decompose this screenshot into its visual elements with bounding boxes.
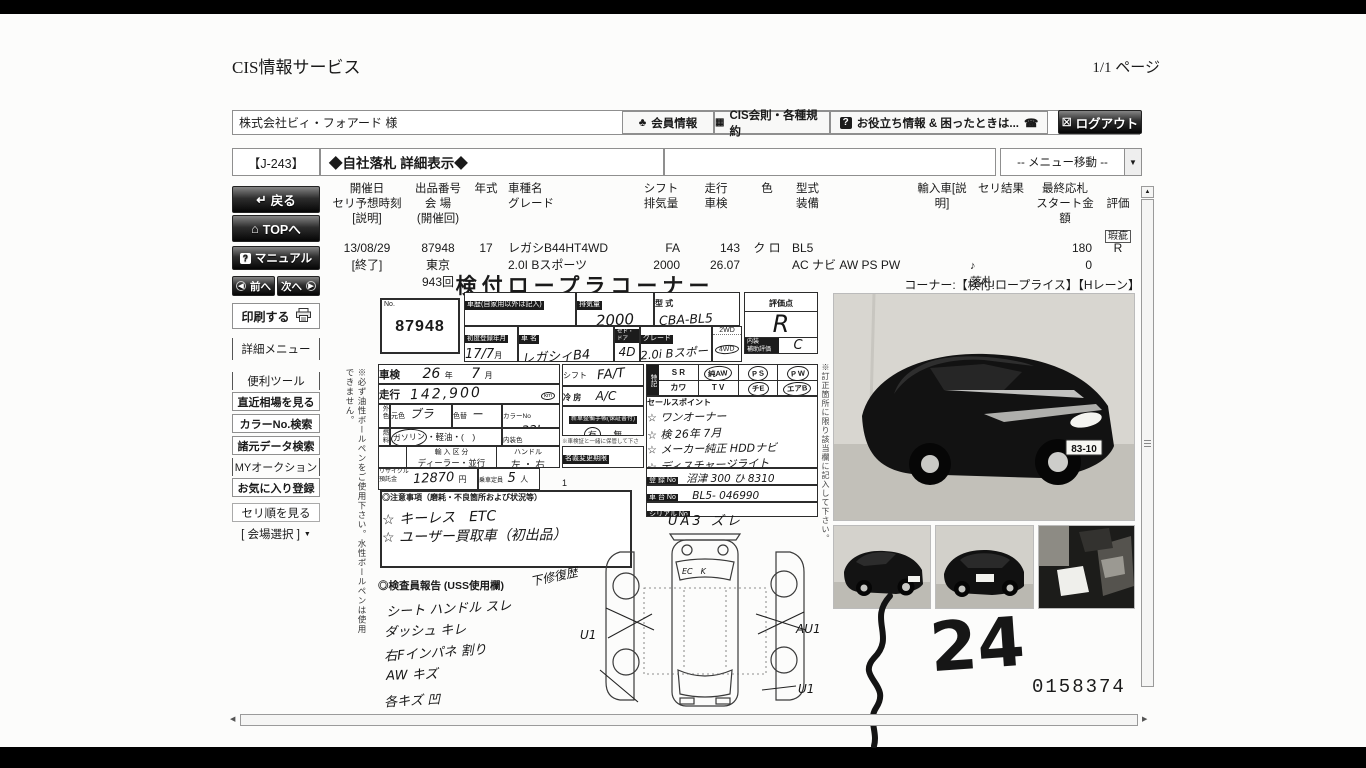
import-handle-row: 輸 入 区 分 ディーラー・並行 ハンドル 左 ・ 右	[378, 446, 560, 468]
main-car-photo[interactable]: 83-10	[833, 293, 1135, 521]
first-reg-value: 17/7	[465, 347, 494, 362]
titlebar-spacer	[664, 148, 996, 176]
vertical-scrollbar[interactable]: ▲	[1141, 186, 1154, 688]
inspector-note: 各キズ 凹	[384, 689, 441, 711]
home-icon: ⌂	[251, 222, 259, 236]
first-reg-cell: 初度登録年月 17/7月	[464, 326, 518, 362]
sidebar-detail-menu[interactable]: 詳細メニュー	[232, 338, 320, 360]
col-result: セリ結果 ♪ 落札	[970, 182, 1032, 291]
chassis-no-row: 車 台 No BL5- 046990	[646, 485, 818, 502]
gavel-icon: ♪	[970, 260, 976, 272]
grid-icon: ▦	[715, 117, 724, 128]
repaint-cell: 色替 ー	[452, 404, 502, 428]
prev-circle-icon: ◀	[236, 281, 246, 291]
rules-button[interactable]: ▦ CIS会則・各種規約	[714, 111, 830, 134]
import-spacer-cell	[379, 447, 407, 467]
drivetrain-cell: 2WD 4WD	[712, 326, 742, 362]
service-book-cell: 新車整備手帳(保証書付) 有 無	[562, 406, 644, 436]
displacement-value: 2000	[577, 309, 654, 326]
handwritten-lane-number: 24	[927, 603, 1027, 688]
service-book-yes: 有	[583, 426, 601, 436]
km-unit: km	[541, 392, 556, 401]
thumb-grip	[1144, 440, 1151, 447]
chevron-down-icon: ▼	[304, 531, 311, 538]
sidebar-manual-button[interactable]: ? マニュアル	[232, 246, 320, 270]
sales-points-box: セールスポイント ☆ ワンオーナー ☆ 検 26年 7月 ☆ メーカー純正 HD…	[646, 396, 818, 468]
col-spec: 型式 装備 BL5 AC ナビ AW PS PW	[790, 182, 914, 291]
model-code-value: CBA-BL5	[659, 309, 740, 326]
correction-note: ※訂正箇所に限り該当欄に記入して下さい。	[820, 363, 831, 573]
history-cell: 車歴(自家用以外は記入)	[464, 292, 576, 326]
repaint-value: ー	[471, 408, 482, 421]
scroll-right-icon[interactable]: ▶	[1142, 713, 1148, 727]
inspector-note: AW キズ	[386, 663, 438, 684]
return-icon: ↵	[256, 192, 266, 207]
car-name-value: レガシィB4	[520, 342, 613, 362]
grade-value: 2.0i Bスポーツ	[640, 343, 712, 362]
phone-icon: ☎	[1024, 116, 1038, 130]
scrollbar-thumb[interactable]	[1141, 199, 1154, 687]
model-code-cell: 型 式 CBA-BL5	[654, 292, 740, 326]
col-amount: 最終応札 スタート金額 180 0	[1032, 182, 1098, 291]
next-button[interactable]: 次へ ▶	[277, 276, 320, 296]
diagram-roof-note: UA3 ズレ	[668, 510, 743, 529]
handle-cell: ハンドル 左 ・ 右	[497, 447, 559, 467]
mileage-cell: 走行 142,900 km マイル	[378, 384, 560, 404]
scroll-up-icon[interactable]: ▲	[1141, 186, 1154, 198]
logout-button[interactable]: ☒ ログアウト	[1058, 110, 1142, 134]
sidebar-venue-select[interactable]: [ 会場選択 ] ▼	[232, 525, 320, 543]
fuel-label: 燃料	[378, 428, 390, 446]
col-import: 輸入車[説明]	[914, 182, 970, 291]
menu-move-select[interactable]: -- メニュー移動 -- ▼	[1000, 148, 1142, 176]
tokki-grid: 特記 S R 純AW P S P W カワ T V チE エアB	[646, 364, 818, 396]
inspector-note: ダッシュ キレ	[384, 619, 467, 641]
base-color-value: ブラ	[409, 407, 433, 421]
col-grade: 評価 瑕疵 R	[1098, 182, 1138, 291]
result-spec: BL5 AC ナビ AW PS PW	[790, 236, 914, 274]
grade-cell: グレード 2.0i Bスポーツ	[640, 326, 712, 362]
diagram-right-note: AU1	[796, 622, 821, 636]
result-grade: R	[1098, 236, 1138, 257]
mileage-value: 142,900	[410, 385, 482, 403]
recycle-cell: リサイクル 預託金 12870 円	[378, 468, 478, 490]
thumb-rear-photo[interactable]	[935, 525, 1034, 609]
sidebar-top-button[interactable]: ⌂TOPへ	[232, 215, 320, 242]
result-date: 13/08/29 [終了]	[326, 236, 408, 274]
printer-icon	[296, 308, 311, 325]
lot-number: 87948	[382, 318, 458, 336]
diagram-left-note: U1	[580, 628, 596, 642]
help-button[interactable]: ? お役立ち情報 & 困ったときは... ☎	[830, 111, 1048, 134]
sidebar-color-search[interactable]: カラーNo.検索	[232, 414, 320, 433]
interior-grade: C	[779, 338, 817, 354]
scroll-left-icon[interactable]: ◀	[230, 713, 236, 727]
help-icon: ?	[840, 117, 852, 129]
diagram-windshield-note: EC K	[682, 566, 706, 577]
inspector-note: シート ハンドル スレ	[386, 595, 512, 621]
load-value: 1	[562, 478, 567, 488]
app-title: CIS情報サービス	[232, 53, 360, 78]
inspector-report-label: ◎検査員報告 (USS使用欄)	[378, 578, 504, 593]
reg-no-value: 沼津 300 ひ 8310	[686, 473, 774, 485]
result-run: 143 26.07	[688, 236, 744, 274]
ac-cell: 冷 房 A/C	[562, 386, 644, 406]
auction-sheet: No. 87948 車歴(自家用以外は記入) 排気量 2000 型 式 CBA-…	[378, 292, 820, 722]
fuel-cell: ガソリン・軽油・( )	[390, 428, 502, 446]
result-model: レガシB44HT4WD 2.0I Bスポーツ	[504, 236, 634, 274]
prev-button[interactable]: ◀ 前へ	[232, 276, 275, 296]
printed-serial-number: 0158374	[1032, 676, 1126, 698]
recycle-value: 12870	[412, 470, 454, 487]
car-name-cell: 車 名 レガシィB4	[518, 326, 614, 362]
result-year: 17	[468, 236, 504, 257]
page-indicator: 1/1 ページ	[1010, 56, 1160, 77]
print-button[interactable]: 印刷する	[232, 303, 320, 329]
body-doors-cell: セド・ドア 4D	[614, 326, 640, 362]
logout-icon: ☒	[1062, 116, 1072, 129]
grade-header: 評価 瑕疵	[1098, 182, 1138, 236]
horizontal-scrollbar[interactable]	[240, 714, 1138, 726]
sidebar-tools-label: 便利ツール	[232, 372, 320, 390]
color-no-cell: カラーNo 32J	[502, 404, 560, 428]
shaken-cell: 車検 26 年 7 月	[378, 364, 560, 384]
next-circle-icon: ▶	[306, 281, 316, 291]
sidebar-favorite[interactable]: お気に入り登録	[232, 478, 320, 497]
sidebar-recent-market[interactable]: 直近相場を見る	[232, 392, 320, 411]
screen: { "page": {"app_title": "CIS情報サービス", "pa…	[0, 0, 1366, 768]
drivetrain-value: 4WD	[715, 344, 739, 355]
license-plate-text: 83-10	[1071, 444, 1097, 455]
thumb-interior-photo[interactable]	[1038, 525, 1135, 609]
diagram-bottom-note: U1	[798, 682, 814, 696]
sidebar-spec-search[interactable]: 諸元データ検索	[232, 436, 320, 455]
capacity-value: 5	[507, 471, 515, 486]
evaluation-box: 評価点 R 内装 補助評価 C	[744, 292, 818, 354]
pen-instruction-note: ※必ず油性ボールペンをご使用下さい。水性ボールペンは使用できません。	[344, 368, 368, 636]
fuel-value: ガソリン	[390, 428, 427, 446]
col-color: 色 ク ロ	[744, 182, 790, 291]
sidebar-back-button[interactable]: ↵戻る	[232, 186, 320, 213]
car-outline-drawing	[592, 510, 818, 720]
reg-no-row: 登 録 No 沼津 300 ひ 8310	[646, 468, 818, 485]
ac-value: A/C	[596, 389, 617, 403]
page-title: ◆自社落札 詳細表示◆	[320, 148, 664, 176]
club-icon: ♣	[639, 117, 647, 129]
chassis-no-value: BL5- 046990	[692, 490, 759, 502]
evaluation-grade: R	[745, 312, 817, 337]
exterior-color-label: 外色	[378, 404, 390, 428]
result-amount: 180 0	[1032, 236, 1098, 274]
capacity-cell: 乗車定員 5 人	[478, 468, 540, 490]
chevron-down-icon: ▼	[1124, 149, 1141, 175]
corner-label: コーナー:【検付!ロープライス】【Hレーン】	[828, 276, 1140, 293]
damage-diagram: UA3 ズレ U1 AU1 U1 EC K	[592, 510, 818, 720]
inspector-note: 右Fインパネ 割り	[383, 638, 487, 664]
body-doors-value: 4D	[615, 345, 639, 359]
screen-code: 【J-243】	[232, 148, 320, 176]
result-color: ク ロ	[744, 236, 790, 257]
transfer-cell: 名義変更期限 月 日	[562, 446, 644, 468]
sidebar-seri-order[interactable]: セリ順を見る	[232, 503, 320, 522]
company-name: 株式会社ビィ・フォアード 様	[233, 116, 397, 130]
base-color-cell: 元色 ブラ	[390, 404, 452, 428]
shift-value: FA/T	[597, 366, 626, 383]
shift-cell: シフト FA/T	[562, 364, 644, 386]
interior-color-cell: 内装色	[502, 428, 560, 446]
result-shift: FA 2000	[634, 236, 688, 274]
displacement-cell: 排気量 2000	[576, 292, 654, 326]
sidebar-my-auction[interactable]: MYオークション	[232, 458, 320, 476]
col-date: 開催日 セリ予想時刻 [説明] 13/08/29 [終了]	[326, 182, 408, 291]
result-import	[914, 236, 970, 240]
lot-number-box: No. 87948	[380, 298, 460, 354]
member-info-button[interactable]: ♣ 会員情報	[622, 111, 714, 134]
question-icon: ?	[240, 253, 251, 264]
import-cell: 輸 入 区 分 ディーラー・並行	[407, 447, 497, 467]
